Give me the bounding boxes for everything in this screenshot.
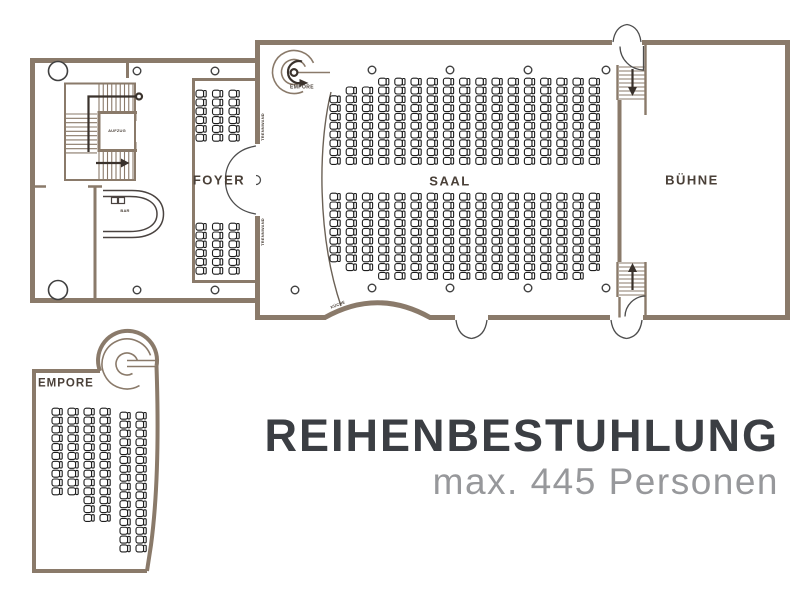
seat	[476, 264, 486, 271]
seat	[460, 228, 470, 235]
seat	[589, 149, 599, 156]
seat	[557, 78, 567, 85]
seat	[524, 78, 534, 85]
seat	[573, 149, 583, 156]
seat	[524, 228, 534, 235]
seat	[379, 140, 389, 147]
seat	[346, 131, 356, 138]
seat	[229, 108, 239, 115]
seat	[395, 264, 405, 271]
seat-block-foyer-upper	[196, 90, 239, 141]
seat	[443, 96, 453, 103]
seat	[492, 264, 502, 271]
seat	[492, 228, 502, 235]
seat	[541, 122, 551, 129]
seat	[508, 193, 518, 200]
seat	[508, 228, 518, 235]
seat	[443, 193, 453, 200]
seat	[476, 220, 486, 227]
seat	[411, 78, 421, 85]
seat	[443, 140, 453, 147]
seat	[52, 488, 62, 495]
seat	[346, 149, 356, 156]
seat	[524, 255, 534, 262]
seat	[411, 211, 421, 218]
seat	[443, 122, 453, 129]
seat	[52, 417, 62, 424]
seat	[541, 105, 551, 112]
seat	[427, 228, 437, 235]
seat	[68, 452, 78, 459]
seat	[84, 435, 94, 442]
seat	[541, 237, 551, 244]
seat	[362, 237, 372, 244]
seat	[460, 113, 470, 120]
seat	[411, 113, 421, 120]
seat	[100, 408, 110, 415]
seat	[508, 246, 518, 253]
seat	[573, 255, 583, 262]
seat	[573, 131, 583, 138]
seat	[443, 131, 453, 138]
seat	[52, 426, 62, 433]
seat	[557, 220, 567, 227]
seat	[395, 272, 405, 279]
seat	[136, 448, 146, 455]
seat	[492, 193, 502, 200]
plan-title: REIHENBESTUHLUNG	[264, 412, 779, 459]
label-trennwand-upper: TRENNWAND	[261, 113, 265, 141]
seat	[362, 211, 372, 218]
seat	[541, 272, 551, 279]
seat	[476, 255, 486, 262]
seat	[524, 246, 534, 253]
seat	[330, 255, 340, 262]
seat	[524, 220, 534, 227]
seat	[508, 157, 518, 164]
floor-plan-drawing	[0, 0, 800, 600]
handrail-post	[136, 94, 142, 100]
seat	[84, 417, 94, 424]
seat	[557, 131, 567, 138]
seat	[330, 220, 340, 227]
seat	[460, 264, 470, 271]
seat	[136, 545, 146, 552]
seat	[524, 202, 534, 209]
seat	[120, 527, 130, 534]
seat	[508, 131, 518, 138]
seat	[136, 430, 146, 437]
seat	[120, 492, 130, 499]
seat	[395, 228, 405, 235]
seat	[379, 78, 389, 85]
seat	[136, 456, 146, 463]
seat	[443, 272, 453, 279]
seat	[524, 237, 534, 244]
seat	[508, 96, 518, 103]
structural-column-small	[133, 67, 141, 75]
seat	[460, 157, 470, 164]
room-label-aufzug: AUFZUG	[108, 129, 126, 133]
seat	[196, 90, 206, 97]
seat	[541, 96, 551, 103]
seat	[476, 122, 486, 129]
room-label-foyer: FOYER	[193, 174, 245, 187]
structural-column-small	[524, 66, 532, 74]
seat	[427, 246, 437, 253]
seat	[196, 241, 206, 248]
seat	[346, 264, 356, 271]
seat	[379, 246, 389, 253]
seat	[362, 122, 372, 129]
seat	[541, 255, 551, 262]
seat	[557, 237, 567, 244]
seat	[524, 122, 534, 129]
seat	[52, 461, 62, 468]
seat	[196, 134, 206, 141]
seat	[68, 479, 78, 486]
seat	[557, 96, 567, 103]
seat	[100, 497, 110, 504]
seat	[395, 105, 405, 112]
seat	[395, 220, 405, 227]
seat	[362, 113, 372, 120]
seat	[427, 272, 437, 279]
spiral-center-post	[291, 69, 298, 76]
seat	[492, 140, 502, 147]
seat-block-saal-lower	[330, 193, 599, 279]
label-empore-stair: EMPORE	[290, 86, 314, 91]
seat	[379, 131, 389, 138]
seat	[136, 518, 146, 525]
seat	[476, 193, 486, 200]
seat	[557, 272, 567, 279]
seat	[84, 497, 94, 504]
seat	[557, 246, 567, 253]
seat	[346, 228, 356, 235]
seat	[100, 444, 110, 451]
seat	[136, 483, 146, 490]
seat	[573, 140, 583, 147]
seat	[541, 149, 551, 156]
seat	[68, 488, 78, 495]
label-trennwand-lower: TRENNWAND	[261, 218, 265, 246]
seat	[427, 220, 437, 227]
seat	[492, 272, 502, 279]
seat	[229, 267, 239, 274]
seat	[589, 237, 599, 244]
structural-column-small	[602, 284, 610, 292]
kueche-arch-wall	[255, 303, 455, 318]
seat	[346, 140, 356, 147]
bar-sink	[119, 198, 125, 204]
seat	[492, 237, 502, 244]
seat	[229, 232, 239, 239]
seat	[196, 99, 206, 106]
seat	[573, 264, 583, 271]
seat	[52, 479, 62, 486]
seat	[395, 113, 405, 120]
seat	[196, 223, 206, 230]
seat	[589, 96, 599, 103]
seat	[411, 272, 421, 279]
seat	[395, 78, 405, 85]
seat	[196, 108, 206, 115]
seat	[330, 237, 340, 244]
seat	[524, 157, 534, 164]
seat	[68, 470, 78, 477]
structural-column-small	[211, 67, 219, 75]
seat	[100, 452, 110, 459]
seat	[476, 228, 486, 235]
seat	[573, 96, 583, 103]
seat	[395, 202, 405, 209]
seat	[395, 193, 405, 200]
seat	[379, 202, 389, 209]
seat	[362, 255, 372, 262]
seat	[346, 237, 356, 244]
seat	[492, 255, 502, 262]
seat	[557, 105, 567, 112]
seat	[443, 87, 453, 94]
seat	[557, 113, 567, 120]
seat	[443, 157, 453, 164]
bar-counter	[103, 191, 164, 238]
seat	[411, 220, 421, 227]
seat	[213, 125, 223, 132]
seat	[427, 211, 437, 218]
seat	[476, 149, 486, 156]
seat	[84, 488, 94, 495]
seat	[508, 113, 518, 120]
seat	[411, 122, 421, 129]
seat	[589, 157, 599, 164]
seat	[524, 96, 534, 103]
seat	[411, 193, 421, 200]
seat	[443, 211, 453, 218]
seat	[100, 461, 110, 468]
seat	[395, 237, 405, 244]
plan-heading: REIHENBESTUHLUNG max. 445 Personen	[264, 412, 779, 503]
seat	[492, 105, 502, 112]
seat	[84, 408, 94, 415]
seat	[524, 113, 534, 120]
seat	[362, 87, 372, 94]
seat	[443, 105, 453, 112]
seat	[330, 140, 340, 147]
seat	[460, 211, 470, 218]
seat	[346, 202, 356, 209]
seat	[379, 264, 389, 271]
seat	[395, 140, 405, 147]
room-label-empore-plan: EMPORE	[38, 378, 94, 390]
seat	[476, 96, 486, 103]
seat	[330, 246, 340, 253]
seat	[395, 149, 405, 156]
seat	[229, 90, 239, 97]
seat	[100, 417, 110, 424]
seat	[589, 211, 599, 218]
seat	[443, 149, 453, 156]
seat	[589, 140, 599, 147]
seat	[229, 117, 239, 124]
seat	[589, 105, 599, 112]
seat	[136, 492, 146, 499]
seat	[395, 211, 405, 218]
seat	[120, 483, 130, 490]
seat	[524, 149, 534, 156]
seat	[589, 220, 599, 227]
seat	[196, 267, 206, 274]
seat	[460, 237, 470, 244]
seat	[346, 105, 356, 112]
seat	[427, 157, 437, 164]
seat	[330, 202, 340, 209]
seat	[589, 131, 599, 138]
seat	[84, 426, 94, 433]
seat	[229, 134, 239, 141]
seat	[443, 264, 453, 271]
seat	[589, 264, 599, 271]
seat	[379, 157, 389, 164]
room-label-saal: SAAL	[429, 175, 470, 188]
seat	[443, 113, 453, 120]
seat	[427, 122, 437, 129]
seat	[362, 105, 372, 112]
seat-block-empore	[52, 408, 146, 552]
seat	[427, 202, 437, 209]
seat	[427, 237, 437, 244]
seat	[379, 105, 389, 112]
room-label-bar: BAR	[120, 209, 129, 213]
seat	[330, 122, 340, 129]
seat	[476, 272, 486, 279]
seat	[557, 264, 567, 271]
seat	[395, 131, 405, 138]
seat	[379, 149, 389, 156]
seat	[460, 87, 470, 94]
structural-column-small	[133, 286, 141, 294]
double-door-bottom-right	[611, 320, 642, 339]
seat	[443, 246, 453, 253]
seat	[443, 202, 453, 209]
seat	[68, 408, 78, 415]
seat	[460, 96, 470, 103]
seat	[589, 255, 599, 262]
seat	[427, 87, 437, 94]
seat	[84, 444, 94, 451]
seat	[573, 228, 583, 235]
seat	[120, 439, 130, 446]
spiral-stair-empore-outer	[102, 339, 150, 389]
seat	[100, 514, 110, 521]
seat	[492, 87, 502, 94]
seat	[362, 246, 372, 253]
seat	[52, 435, 62, 442]
seat	[524, 105, 534, 112]
seat	[492, 202, 502, 209]
seat	[84, 452, 94, 459]
seat	[136, 510, 146, 517]
structural-column-small	[524, 284, 532, 292]
seat	[136, 536, 146, 543]
seat	[362, 157, 372, 164]
seat	[411, 157, 421, 164]
seat	[330, 105, 340, 112]
structural-column-small	[368, 284, 376, 292]
seat	[411, 96, 421, 103]
seat	[524, 264, 534, 271]
seat	[411, 105, 421, 112]
seat	[68, 444, 78, 451]
seat	[52, 452, 62, 459]
seat	[460, 193, 470, 200]
seat	[476, 78, 486, 85]
seat	[68, 461, 78, 468]
seat	[213, 267, 223, 274]
seat	[508, 237, 518, 244]
seat	[573, 220, 583, 227]
seat	[395, 157, 405, 164]
seat	[120, 510, 130, 517]
seat	[492, 220, 502, 227]
seat	[100, 488, 110, 495]
seat	[120, 474, 130, 481]
structural-column-large	[49, 62, 68, 81]
spiral-stair-empore-inner	[116, 353, 137, 375]
seat	[362, 220, 372, 227]
seat	[213, 232, 223, 239]
seat	[213, 241, 223, 248]
seat	[476, 202, 486, 209]
seat	[460, 122, 470, 129]
seat	[589, 122, 599, 129]
seat	[411, 237, 421, 244]
seat	[443, 255, 453, 262]
seat	[427, 264, 437, 271]
seat	[100, 506, 110, 513]
seat	[541, 140, 551, 147]
seat	[589, 193, 599, 200]
seat	[427, 105, 437, 112]
seat	[84, 470, 94, 477]
bar-sink	[112, 198, 118, 204]
floor-plan-canvas: FOYER SAAL BÜHNE EMPORE AUFZUG BAR KÜCHE…	[0, 0, 800, 600]
seat	[362, 140, 372, 147]
room-label-buehne: BÜHNE	[665, 174, 719, 187]
seat	[346, 255, 356, 262]
seat	[229, 258, 239, 265]
seat	[508, 149, 518, 156]
seat	[411, 131, 421, 138]
seat	[346, 211, 356, 218]
structural-column-small	[602, 66, 610, 74]
seat	[120, 421, 130, 428]
seat	[541, 87, 551, 94]
seat-block-foyer-lower	[196, 223, 239, 274]
seat	[330, 96, 340, 103]
seat	[330, 149, 340, 156]
seat	[52, 408, 62, 415]
seat	[411, 202, 421, 209]
seat	[120, 465, 130, 472]
seat	[557, 122, 567, 129]
seat	[136, 501, 146, 508]
seat	[395, 122, 405, 129]
seat	[120, 412, 130, 419]
seat	[330, 131, 340, 138]
seat	[411, 149, 421, 156]
